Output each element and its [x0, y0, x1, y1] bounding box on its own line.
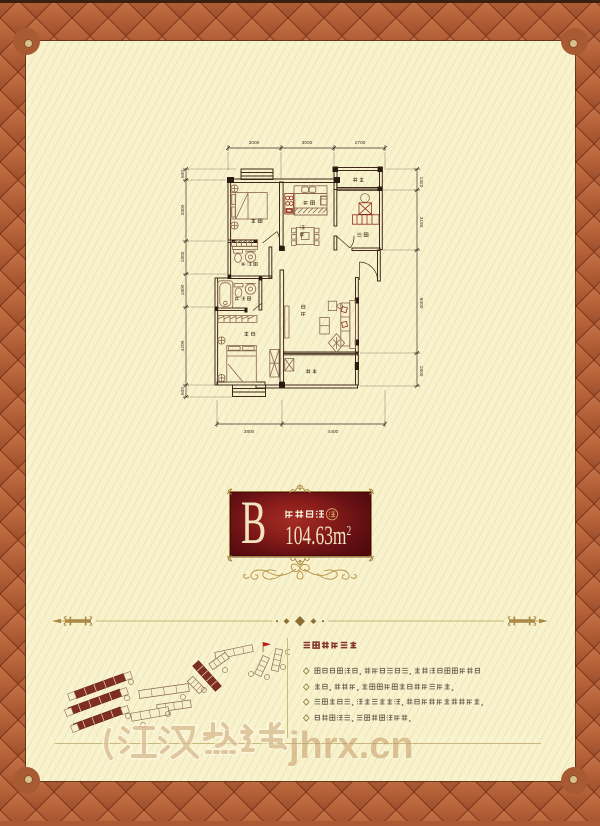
- svg-text:1800: 1800: [180, 284, 186, 295]
- svg-text:3300: 3300: [180, 204, 186, 215]
- svg-text:3180: 3180: [418, 217, 424, 228]
- svg-text:1800: 1800: [418, 366, 424, 377]
- svg-text:4400: 4400: [328, 429, 339, 435]
- svg-text:3000: 3000: [249, 140, 260, 146]
- svg-text:600: 600: [180, 170, 186, 178]
- svg-text:3800: 3800: [244, 429, 255, 435]
- svg-text:1800: 1800: [180, 251, 186, 262]
- svg-text:600: 600: [180, 387, 186, 395]
- svg-text:4200: 4200: [180, 340, 186, 351]
- svg-text:3000: 3000: [302, 140, 313, 146]
- svg-text:2700: 2700: [355, 140, 366, 146]
- svg-text:1320: 1320: [418, 177, 424, 188]
- svg-text:jhrx.cn: jhrx.cn: [288, 725, 414, 767]
- svg-text:6000: 6000: [418, 298, 424, 309]
